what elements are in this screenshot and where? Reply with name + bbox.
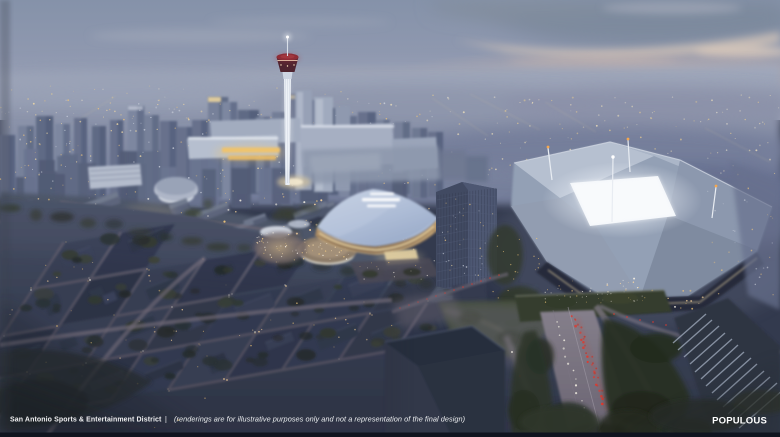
svg-text:|: | — [165, 417, 167, 424]
svg-text:POPULOUS: POPULOUS — [712, 416, 767, 427]
svg-text:(renderings are for illustrati: (renderings are for illustrative purpose… — [174, 415, 466, 424]
svg-text:San Antonio Sports & Entertain: San Antonio Sports & Entertainment Distr… — [10, 417, 162, 424]
